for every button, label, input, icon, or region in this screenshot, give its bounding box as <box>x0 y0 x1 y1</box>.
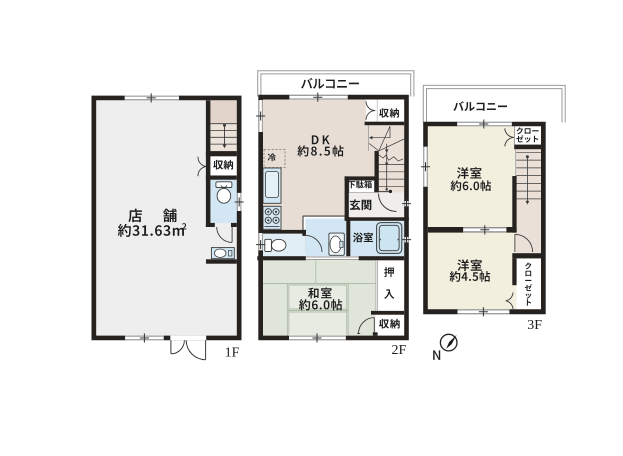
svg-text:2F: 2F <box>392 343 407 358</box>
svg-text:1F: 1F <box>225 346 240 361</box>
svg-text:3F: 3F <box>527 318 542 333</box>
